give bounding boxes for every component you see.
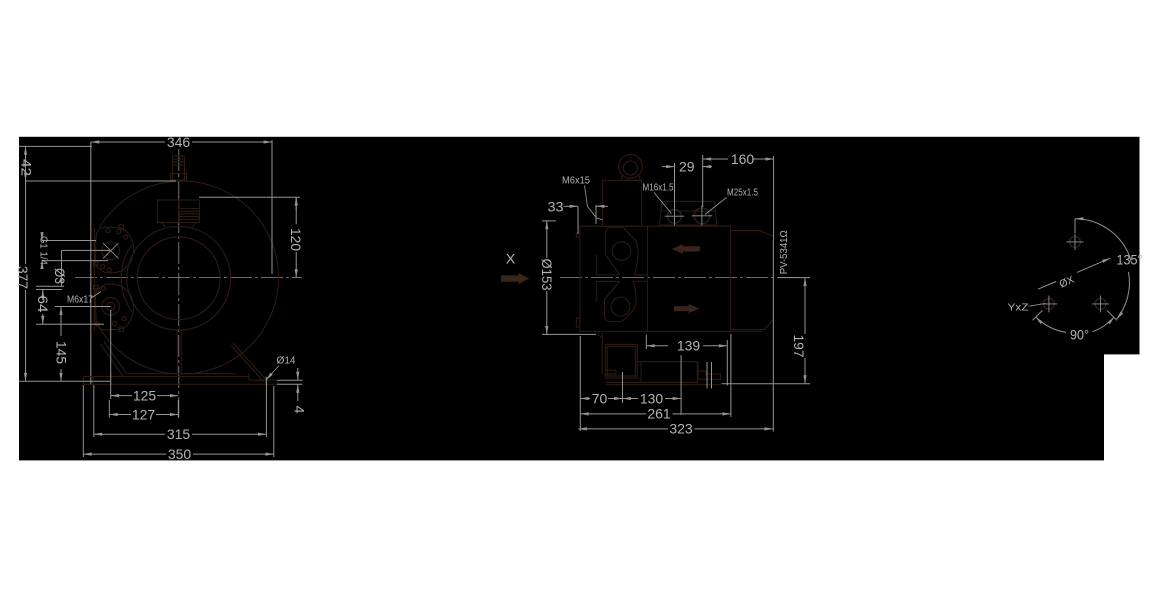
svg-text:90°: 90°: [1070, 327, 1089, 343]
svg-text:323: 323: [669, 421, 693, 437]
svg-text:M6x17: M6x17: [67, 294, 93, 306]
svg-text:160: 160: [731, 151, 755, 167]
svg-text:G1 1/4: G1 1/4: [38, 236, 50, 265]
svg-text:125: 125: [133, 387, 157, 403]
svg-text:YxZ: YxZ: [1008, 302, 1030, 314]
svg-text:139: 139: [677, 338, 701, 354]
svg-text:4: 4: [292, 406, 308, 414]
svg-text:33: 33: [548, 198, 564, 214]
svg-text:197: 197: [791, 335, 807, 358]
svg-text:M16x1.5: M16x1.5: [643, 182, 674, 194]
svg-text:Ø14: Ø14: [277, 355, 296, 367]
svg-text:127: 127: [132, 406, 156, 422]
svg-text:70: 70: [592, 390, 608, 406]
svg-text:145: 145: [54, 341, 70, 364]
svg-text:64: 64: [35, 296, 51, 313]
svg-text:346: 346: [167, 134, 191, 150]
svg-text:M6x15: M6x15: [562, 175, 590, 187]
svg-text:M25x1.5: M25x1.5: [727, 187, 758, 199]
svg-text:42: 42: [19, 159, 35, 176]
svg-text:120: 120: [288, 228, 304, 251]
svg-text:29: 29: [679, 159, 695, 175]
svg-text:Ø153: Ø153: [539, 259, 555, 291]
svg-text:X: X: [506, 251, 516, 267]
svg-text:350: 350: [168, 446, 192, 462]
svg-text:315: 315: [167, 426, 191, 442]
svg-text:135°: 135°: [1117, 252, 1143, 268]
svg-text:130: 130: [640, 390, 664, 406]
svg-text:PV-5341Ω: PV-5341Ω: [778, 230, 790, 274]
svg-text:377: 377: [15, 266, 31, 289]
svg-text:Ø3: Ø3: [52, 268, 68, 284]
svg-text:261: 261: [647, 406, 671, 422]
